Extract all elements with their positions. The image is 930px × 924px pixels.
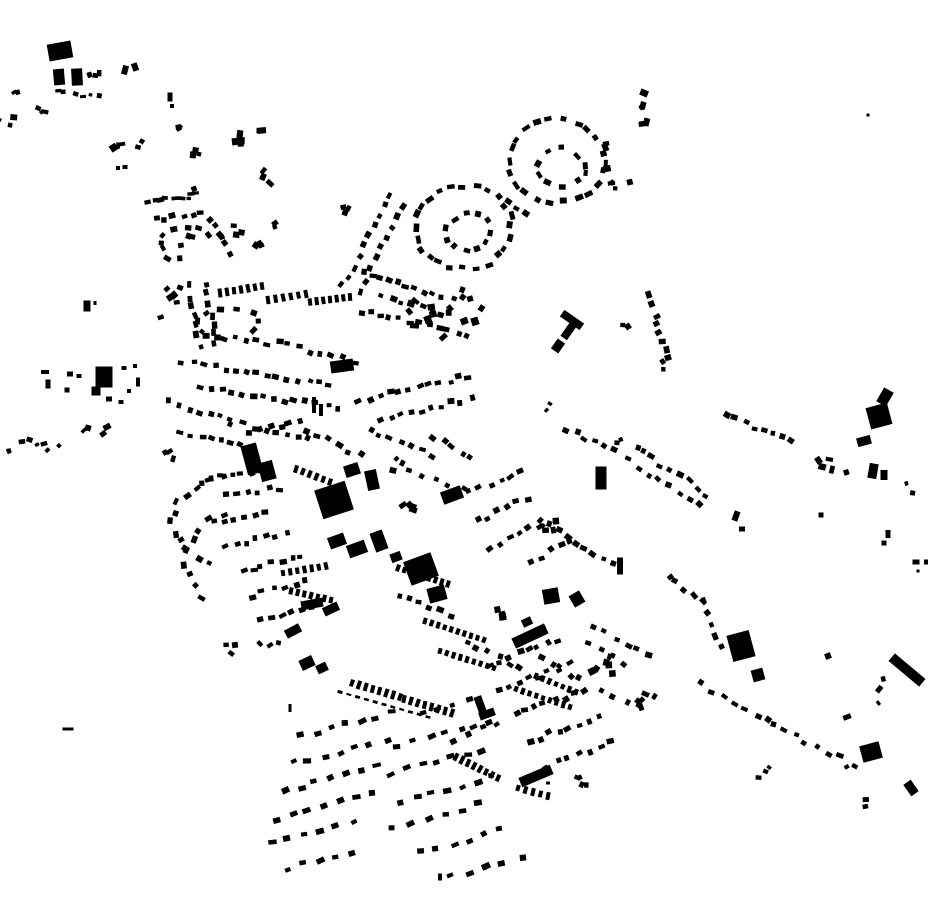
building (546, 520, 553, 527)
building (376, 687, 382, 696)
building (209, 386, 215, 392)
building (428, 404, 434, 411)
building (625, 642, 633, 649)
building (389, 467, 397, 474)
building (574, 428, 581, 435)
building (60, 89, 66, 94)
building (482, 239, 488, 246)
building (644, 651, 652, 658)
building (268, 839, 277, 844)
building (191, 186, 198, 193)
building (401, 284, 409, 290)
building (521, 124, 530, 132)
building (308, 298, 313, 306)
building (284, 341, 290, 346)
building (509, 143, 516, 152)
building (258, 468, 263, 473)
building (419, 447, 426, 452)
building (293, 465, 299, 474)
building (560, 684, 566, 690)
building (417, 848, 424, 854)
building (471, 658, 477, 665)
building (190, 212, 197, 219)
building (465, 640, 471, 646)
building (196, 410, 204, 417)
building (285, 530, 290, 536)
building (337, 690, 343, 694)
building (532, 118, 541, 126)
building (523, 523, 531, 531)
building (195, 225, 203, 231)
building (327, 532, 347, 549)
building (206, 216, 214, 224)
building (63, 728, 74, 731)
building (279, 424, 286, 430)
building (653, 313, 661, 320)
building (204, 282, 210, 288)
building (558, 145, 564, 150)
building (232, 287, 237, 295)
building (386, 192, 392, 199)
building (432, 759, 440, 766)
building (461, 630, 467, 637)
building (814, 743, 821, 750)
building (421, 289, 429, 297)
building (723, 411, 732, 420)
building (743, 419, 750, 426)
building (0, 116, 2, 123)
building (598, 743, 606, 749)
building (223, 491, 230, 497)
building (336, 796, 345, 804)
building (456, 331, 462, 338)
building (466, 454, 473, 461)
building (530, 788, 536, 797)
building (133, 364, 137, 368)
building (314, 730, 322, 737)
building (544, 728, 552, 736)
building (697, 679, 704, 686)
building (464, 375, 472, 381)
building (159, 232, 166, 239)
building (608, 693, 616, 701)
building (96, 93, 102, 99)
building (271, 534, 277, 540)
building (464, 656, 470, 664)
building (454, 373, 462, 380)
building (587, 749, 594, 756)
building (575, 674, 582, 682)
building (447, 184, 455, 189)
building (466, 295, 473, 302)
building (320, 802, 328, 810)
building (446, 265, 453, 271)
building (217, 413, 223, 419)
building (449, 738, 457, 746)
building (427, 304, 435, 311)
building (233, 368, 239, 374)
building (295, 589, 300, 597)
building (399, 439, 406, 446)
building (285, 432, 290, 437)
building (178, 196, 185, 200)
building (545, 639, 552, 646)
building (306, 470, 313, 479)
building (584, 782, 589, 788)
building (187, 281, 191, 288)
building (666, 466, 673, 473)
building (86, 71, 92, 78)
building (369, 273, 377, 278)
building (197, 210, 204, 215)
building (794, 732, 800, 737)
building (337, 750, 345, 757)
building (312, 397, 316, 413)
building (212, 222, 219, 229)
building (451, 295, 457, 301)
building (702, 493, 709, 499)
building (428, 702, 434, 711)
building (488, 773, 494, 778)
building (444, 650, 450, 657)
building (497, 653, 503, 660)
building (610, 446, 618, 454)
building (460, 451, 466, 458)
building (171, 196, 179, 200)
building (293, 582, 300, 589)
building (302, 577, 308, 584)
building (208, 411, 215, 418)
building (664, 354, 672, 362)
building (647, 300, 655, 308)
building (257, 588, 264, 593)
building (499, 478, 505, 484)
building (341, 294, 346, 302)
building (191, 535, 199, 544)
building (442, 706, 448, 715)
building (384, 737, 392, 744)
building (297, 418, 303, 425)
building (425, 195, 435, 204)
building (497, 541, 504, 548)
building (496, 660, 502, 666)
building (466, 838, 474, 845)
building (824, 652, 832, 660)
building (592, 438, 599, 444)
building (261, 509, 268, 515)
building (647, 452, 656, 460)
building (238, 285, 243, 294)
building (390, 705, 396, 709)
building (550, 526, 556, 533)
building (459, 784, 466, 791)
building (279, 559, 287, 565)
building (308, 591, 314, 599)
building (503, 503, 511, 511)
building (475, 515, 483, 523)
building (224, 287, 229, 296)
building (470, 316, 479, 326)
building (288, 587, 293, 595)
building (358, 288, 364, 296)
building (567, 673, 575, 681)
building (323, 562, 329, 570)
building (538, 555, 545, 561)
building (198, 344, 204, 350)
building (232, 334, 237, 339)
building (399, 202, 407, 211)
building (867, 114, 870, 117)
building (322, 754, 330, 760)
building (473, 799, 482, 806)
building (314, 297, 319, 306)
building (694, 486, 701, 493)
building (280, 293, 286, 302)
building (350, 744, 358, 750)
building (314, 481, 354, 519)
building (446, 872, 453, 878)
building (157, 314, 164, 320)
building (168, 212, 176, 219)
building (181, 214, 188, 220)
building (77, 374, 82, 378)
building (324, 434, 332, 441)
building (415, 599, 421, 604)
building (332, 854, 339, 859)
building (418, 473, 425, 480)
building (106, 397, 112, 402)
building (390, 690, 396, 700)
building (394, 388, 401, 395)
building (300, 468, 306, 476)
building (633, 645, 640, 652)
building (484, 187, 491, 194)
building (127, 389, 131, 393)
building (507, 534, 515, 541)
building (331, 822, 340, 830)
building (527, 558, 534, 565)
building (424, 380, 432, 387)
building (181, 561, 187, 569)
building (378, 393, 385, 399)
building (507, 234, 514, 243)
building (303, 290, 309, 299)
building (604, 160, 608, 167)
building (726, 630, 755, 662)
building (620, 661, 628, 669)
building (219, 437, 224, 443)
building (444, 237, 451, 244)
building (46, 380, 51, 389)
building (433, 476, 439, 482)
building (371, 715, 379, 721)
building (162, 449, 169, 456)
building (437, 648, 442, 655)
building (910, 490, 916, 496)
building (563, 755, 569, 762)
building (428, 453, 436, 461)
building (267, 422, 275, 429)
building (617, 558, 623, 575)
building (135, 144, 142, 150)
building (322, 602, 340, 617)
building (476, 765, 483, 774)
building (192, 582, 199, 589)
building (447, 398, 454, 404)
building (583, 170, 588, 176)
building (495, 774, 502, 782)
building (516, 467, 524, 474)
building (328, 296, 333, 304)
building (425, 815, 434, 823)
building (356, 680, 363, 690)
building (512, 137, 519, 145)
building (301, 832, 308, 837)
building (422, 617, 428, 624)
building (158, 240, 164, 245)
building (499, 612, 507, 620)
building (574, 193, 584, 201)
building (513, 205, 520, 212)
building (521, 209, 530, 218)
building (383, 235, 390, 242)
building (249, 326, 258, 335)
building (521, 707, 528, 712)
building (761, 427, 768, 433)
building (580, 687, 588, 695)
building (266, 642, 273, 649)
building (555, 526, 563, 534)
building (239, 419, 247, 425)
building (740, 706, 748, 712)
building (551, 339, 565, 354)
building (751, 668, 766, 683)
building (449, 708, 456, 717)
building (288, 568, 293, 576)
building (407, 442, 415, 450)
building (527, 690, 532, 697)
building (651, 693, 658, 700)
building (397, 799, 404, 806)
building (645, 290, 653, 299)
building (537, 736, 545, 744)
building (500, 202, 508, 210)
building (276, 488, 283, 493)
building (609, 670, 616, 677)
building (240, 567, 248, 573)
building (186, 197, 191, 200)
building (614, 440, 619, 445)
building (282, 835, 290, 842)
building (271, 373, 279, 380)
building (393, 744, 401, 750)
building (217, 306, 225, 312)
building (418, 202, 425, 210)
building (584, 190, 594, 198)
building (509, 211, 516, 220)
building (88, 93, 92, 97)
building (327, 478, 333, 486)
building (221, 519, 228, 525)
building (417, 246, 425, 254)
building (317, 351, 322, 357)
building (544, 408, 549, 413)
building (780, 726, 788, 733)
building (695, 500, 704, 509)
building (389, 415, 396, 421)
building (399, 459, 406, 466)
building (506, 221, 513, 229)
building (204, 300, 211, 308)
building (626, 179, 633, 186)
building (136, 378, 140, 387)
building (364, 469, 380, 491)
building (545, 792, 550, 801)
building (389, 825, 395, 830)
building (690, 591, 698, 600)
building (408, 409, 414, 415)
building (417, 382, 425, 389)
building (170, 455, 176, 463)
building (588, 550, 597, 559)
building (448, 626, 454, 633)
building (298, 785, 307, 792)
building (414, 794, 422, 800)
building (170, 226, 178, 233)
building (779, 433, 786, 440)
building (406, 819, 416, 827)
building (534, 159, 543, 168)
building (389, 295, 398, 303)
building (475, 635, 480, 642)
building (484, 516, 491, 523)
building (474, 183, 482, 189)
building (238, 229, 245, 236)
building (116, 166, 120, 170)
building (231, 223, 237, 228)
building (348, 293, 353, 301)
building (402, 566, 408, 573)
building (573, 152, 581, 160)
building (544, 116, 552, 122)
building (119, 400, 124, 404)
building (522, 786, 528, 795)
building (459, 264, 466, 269)
building (433, 258, 442, 265)
building (249, 594, 257, 601)
building (273, 817, 281, 824)
building (257, 127, 266, 134)
building (550, 661, 557, 668)
building (227, 650, 234, 657)
building (545, 148, 552, 154)
building (819, 513, 824, 518)
building (122, 366, 127, 370)
building (166, 397, 171, 403)
building (770, 431, 775, 436)
building (310, 778, 317, 784)
building (18, 439, 25, 445)
building (176, 284, 183, 291)
building (230, 517, 236, 523)
building (296, 291, 301, 299)
building (65, 388, 70, 393)
building (913, 560, 920, 565)
building (517, 647, 525, 655)
building (484, 216, 491, 224)
building (406, 467, 413, 473)
building (395, 564, 401, 572)
